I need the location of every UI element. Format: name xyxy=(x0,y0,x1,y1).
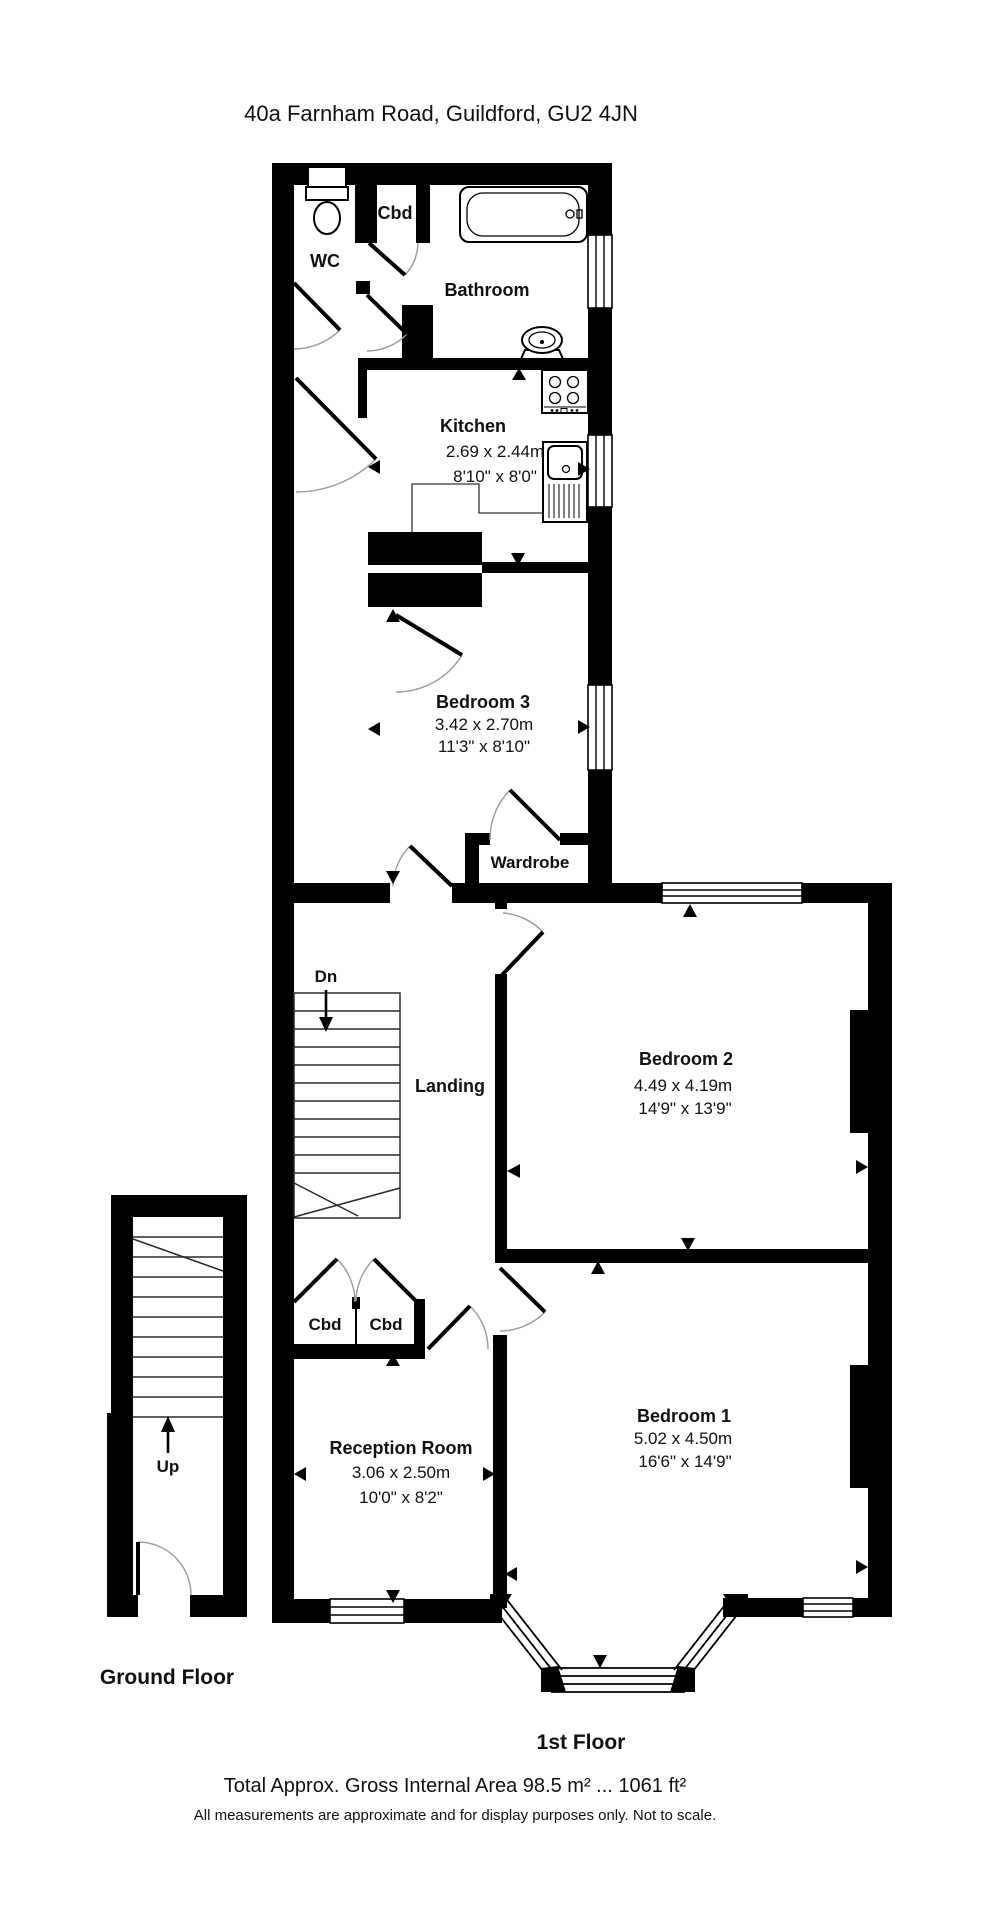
window-bedroom2 xyxy=(662,883,802,903)
kitchen-counter xyxy=(412,484,543,532)
label-bedroom2-dims-ft: 14'9" x 13'9" xyxy=(638,1099,731,1118)
chimney-breast xyxy=(368,573,482,607)
toilet-icon xyxy=(306,167,348,234)
label-bedroom1-dims-m: 5.02 x 4.50m xyxy=(634,1429,732,1448)
door-cbd-left xyxy=(294,1259,355,1302)
door-front xyxy=(138,1542,191,1595)
label-cbd-left: Cbd xyxy=(308,1315,341,1334)
door-bedroom2 xyxy=(502,913,543,975)
bay-corner xyxy=(670,1666,695,1692)
hob-icon xyxy=(542,370,588,413)
label-bedroom3: Bedroom 3 xyxy=(436,692,530,712)
label-cbd-right: Cbd xyxy=(369,1315,402,1334)
label-bathroom: Bathroom xyxy=(445,280,530,300)
floorplan-canvas: 40a Farnham Road, Guildford, GU2 4JN WC … xyxy=(0,0,993,1920)
chimney-breast xyxy=(850,1365,868,1488)
door-cbd-right xyxy=(356,1259,416,1301)
chimney-breast xyxy=(850,1010,868,1133)
label-stairs-up: Up xyxy=(157,1457,180,1476)
label-landing: Landing xyxy=(415,1076,485,1096)
label-ground-floor: Ground Floor xyxy=(100,1666,234,1689)
window-kitchen xyxy=(588,435,612,507)
door-cbd-top xyxy=(369,243,418,275)
door-wc xyxy=(294,283,340,349)
basin-icon xyxy=(521,327,563,359)
arrow-kitchen-left xyxy=(368,460,380,474)
label-bedroom3-dims-ft: 11'3" x 8'10" xyxy=(438,737,530,756)
footer-area: Total Approx. Gross Internal Area 98.5 m… xyxy=(224,1775,687,1797)
label-reception-dims-m: 3.06 x 2.50m xyxy=(352,1463,450,1482)
label-kitchen: Kitchen xyxy=(440,416,506,436)
label-stairs-down: Dn xyxy=(315,967,338,986)
bay-corner xyxy=(541,1666,566,1692)
label-bedroom2-dims-m: 4.49 x 4.19m xyxy=(634,1076,732,1095)
walls xyxy=(107,163,892,1692)
stairs-down xyxy=(294,990,400,1218)
label-bedroom1: Bedroom 1 xyxy=(637,1406,731,1426)
window-bedroom3 xyxy=(588,685,612,770)
door-bedroom3 xyxy=(393,846,452,886)
arrow-bedroom1-down xyxy=(593,1655,607,1668)
kitchen-sink-icon xyxy=(543,442,587,522)
label-kitchen-dims-m: 2.69 x 2.44m xyxy=(446,442,544,461)
window-bedroom1 xyxy=(803,1598,853,1617)
door-bedroom1 xyxy=(500,1268,545,1331)
door-reception xyxy=(428,1306,488,1349)
door-bathroom xyxy=(367,295,407,351)
door-kitchen-bedroom3 xyxy=(396,615,462,692)
label-bedroom2: Bedroom 2 xyxy=(639,1049,733,1069)
bathtub-icon xyxy=(460,187,587,242)
label-bedroom1-dims-ft: 16'6" x 14'9" xyxy=(638,1452,731,1471)
bay-window xyxy=(492,1596,744,1692)
chimney-breast xyxy=(368,532,482,565)
label-cbd-top: Cbd xyxy=(378,203,413,223)
label-first-floor: 1st Floor xyxy=(537,1731,626,1754)
footer-disclaimer: All measurements are approximate and for… xyxy=(194,1807,716,1824)
label-wc: WC xyxy=(310,251,340,271)
arrow-bedroom3-left xyxy=(368,722,380,736)
floorplan-page: 40a Farnham Road, Guildford, GU2 4JN WC … xyxy=(0,0,993,1920)
label-kitchen-dims-ft: 8'10" x 8'0" xyxy=(453,467,537,486)
label-wardrobe: Wardrobe xyxy=(491,853,570,872)
stairs-up xyxy=(133,1237,223,1453)
label-reception-dims-ft: 10'0" x 8'2" xyxy=(359,1488,443,1507)
arrow-bedroom3-down xyxy=(386,871,400,884)
arrow-reception-left xyxy=(294,1467,306,1481)
door-wardrobe xyxy=(490,790,560,840)
arrow-bedroom1-right xyxy=(856,1560,868,1574)
arrow-bedroom2-up xyxy=(683,904,697,917)
arrow-bedroom2-left xyxy=(507,1164,520,1178)
page-title: 40a Farnham Road, Guildford, GU2 4JN xyxy=(244,101,638,126)
label-reception: Reception Room xyxy=(329,1438,472,1458)
window-bathroom xyxy=(588,235,612,308)
label-bedroom3-dims-m: 3.42 x 2.70m xyxy=(435,715,533,734)
arrow-bedroom2-right xyxy=(856,1160,868,1174)
